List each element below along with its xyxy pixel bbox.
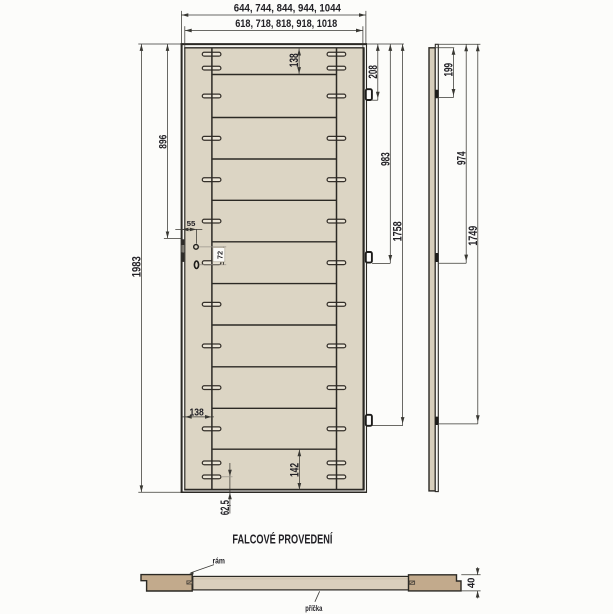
- svg-text:208: 208: [368, 65, 380, 79]
- svg-text:896: 896: [157, 135, 169, 149]
- svg-text:55: 55: [187, 219, 196, 228]
- svg-text:618, 718, 818, 918, 1018: 618, 718, 818, 918, 1018: [235, 18, 337, 30]
- svg-text:62,5: 62,5: [220, 500, 232, 515]
- svg-text:1758: 1758: [393, 221, 405, 241]
- svg-text:příčka: příčka: [305, 604, 322, 613]
- svg-text:FALCOVÉ PROVEDENÍ: FALCOVÉ PROVEDENÍ: [232, 531, 332, 546]
- svg-text:983: 983: [380, 152, 392, 166]
- svg-text:72: 72: [215, 251, 224, 259]
- svg-text:rám: rám: [212, 557, 225, 566]
- svg-text:138: 138: [289, 53, 301, 67]
- svg-text:40: 40: [466, 578, 478, 589]
- svg-text:1749: 1749: [468, 226, 480, 246]
- svg-text:138: 138: [189, 407, 204, 418]
- svg-text:199: 199: [444, 63, 456, 77]
- svg-text:142: 142: [289, 463, 301, 477]
- svg-text:1983: 1983: [129, 256, 143, 277]
- svg-text:974: 974: [456, 151, 468, 165]
- svg-text:644, 744, 844, 944, 1044: 644, 744, 844, 944, 1044: [234, 2, 342, 14]
